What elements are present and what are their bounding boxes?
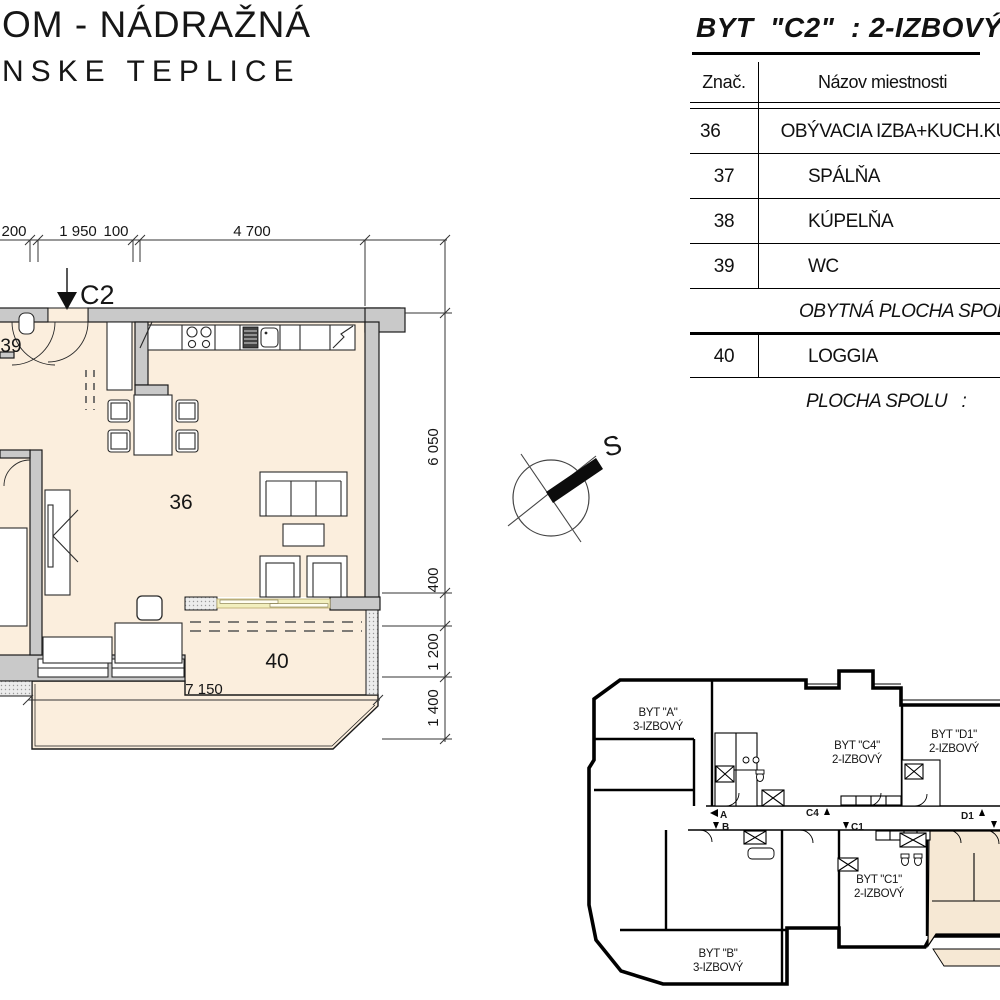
loggia-wall-stub [330,597,380,610]
table-line [690,108,1000,109]
coffee-table [283,524,324,546]
project-title: OM - NÁDRAŽNÁ NSKE TEPLICE [2,4,311,89]
north-arrow-icon [546,458,603,503]
apartment-table-title: BYT "C2" : 2-IZBOVÝ [696,12,1000,44]
room-name: LOGGIA [758,346,878,368]
apartment-c4-type: 2-IZBOVÝ [832,753,883,766]
bed [0,528,27,626]
entrance-marker-c4: C4 [806,808,819,819]
table-row: 36 OBÝVACIA IZBA+KUCH.KÚT [690,111,1000,153]
room-name: WC [758,256,839,278]
table-total-row: PLOCHA SPOLU : [690,381,1000,423]
room-name: KÚPELŇA [758,211,893,233]
table-row: 38 KÚPELŇA [690,201,1000,243]
room-number-living: 36 [169,491,192,514]
apartment-d1-name: BYT "D1" [931,729,977,741]
col-header-name: Názov miestnosti [758,72,947,93]
dining-table [134,395,172,455]
dim-right-2: 1 200 [425,633,442,671]
table-row: 39 WC [690,246,1000,288]
wall-stub [0,450,30,458]
entrance-marker: C2 [57,268,115,310]
entrance-label: C2 [80,280,115,310]
tall-cabinet [107,322,132,390]
loggia-sliding-door [217,599,330,608]
dim-right-3: 1 400 [425,689,442,727]
room-code: 38 [690,211,758,233]
room-code: 37 [690,166,758,188]
table-line [690,243,1000,244]
building-overview-plan: BYT "A" 3-IZBOVÝ BYT "C4" 2-IZBOVÝ BYT "… [580,665,1000,1000]
table-line [690,153,1000,154]
dim-top-1: 1 950 [59,225,97,240]
highlighted-apartment-c2 [928,831,1000,946]
room-number-wc: 39 [0,336,21,357]
room-code: 40 [690,346,758,368]
dim-right-0: 6 050 [425,428,442,466]
dim-right-1: 400 [425,567,442,592]
entrance-arrow-icon [57,292,77,310]
desk-chair [137,596,162,620]
apartment-a-name: BYT "A" [638,707,677,719]
table-title-underline [692,52,980,55]
desk [115,623,182,663]
apartment-c1-type: 2-IZBOVÝ [854,887,905,900]
apartment-floorplan: C2 36 39 40 200 1 950 100 [0,225,500,785]
apartment-a-type: 3-IZBOVÝ [633,720,684,733]
north-compass: S [495,420,645,570]
room-number-loggia: 40 [265,650,288,673]
entrance-marker-c1: C1 [851,822,864,833]
table-header-row: Znač. Názov miestnosti [690,62,1000,102]
right-wall [365,322,379,598]
room-name: SPÁLŇA [758,166,880,188]
table-line [690,288,1000,289]
entrance-marker-b: B [722,822,729,833]
apartment-b-name: BYT "B" [698,948,737,960]
dim-bottom: 7 150 [185,681,223,698]
subtotal-label: OBYTNÁ PLOCHA SPOLU [751,301,1000,323]
table-column-divider [758,62,759,288]
highlighted-balcony-c2 [933,949,1000,966]
table-column-divider [758,335,759,377]
kitchen-nook-wall [135,322,148,385]
table-subtotal-row: OBYTNÁ PLOCHA SPOLU [690,291,1000,332]
project-title-line1: OM - NÁDRAŽNÁ [2,4,311,46]
wc-sink [19,313,34,334]
entrance-marker-d1: D1 [961,811,974,822]
project-title-line2: NSKE TEPLICE [2,55,311,89]
room-name: OBÝVACIA IZBA+KUCH.KÚT [731,121,1000,143]
table-row: 40 LOGGIA [690,336,1000,377]
entrance-marker-a: A [720,810,727,821]
floorplan-sheet: { "title": { "line1": "OM - NÁDRAŽNÁ", "… [0,0,1000,1000]
table-row: 37 SPÁLŇA [690,156,1000,198]
total-label: PLOCHA SPOLU : [758,391,966,413]
room-code: 39 [690,256,758,278]
dim-top-0: 200 [1,225,26,240]
partition-wall [30,450,42,655]
sofa [260,472,347,516]
apartment-c1-name: BYT "C1" [856,874,902,886]
table-line-thick [690,332,1000,335]
table-line [690,198,1000,199]
entrance-opening [48,308,88,322]
table-line [690,102,1000,103]
sideboard [43,637,112,663]
room-code: 36 [690,121,731,143]
north-label: S [600,429,625,463]
col-header-code: Znač. [690,72,758,93]
top-wall [88,308,400,322]
room-legend-table: BYT "C2" : 2-IZBOVÝ Znač. Názov miestnos… [690,10,1000,435]
dim-top-3: 4 700 [233,225,271,240]
apartment-b-type: 3-IZBOVÝ [693,961,744,974]
dim-top-2: 100 [103,225,128,240]
table-line [690,377,1000,378]
apartment-c4-name: BYT "C4" [834,740,880,752]
apartment-d1-type: 2-IZBOVÝ [929,742,980,755]
